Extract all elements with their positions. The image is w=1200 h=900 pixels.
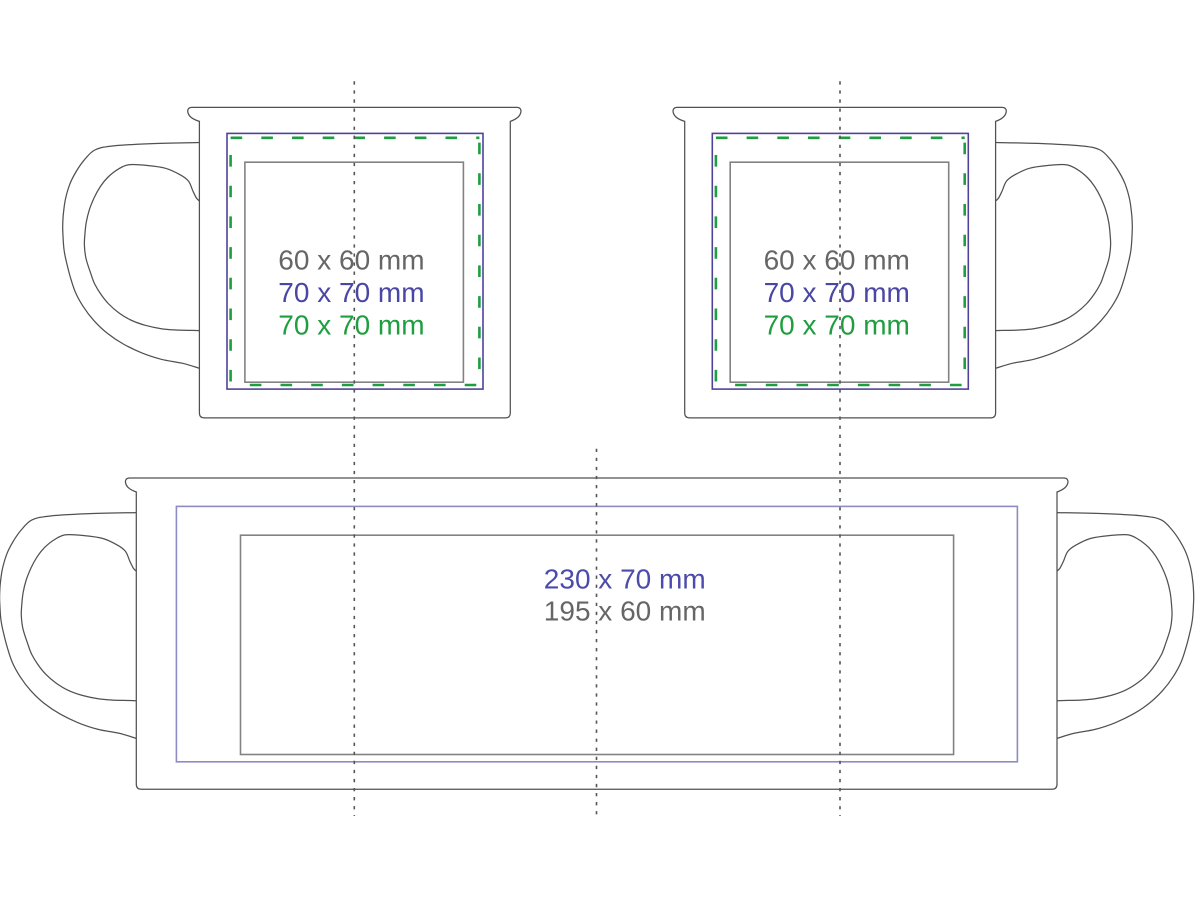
svg-text:70 x 70 mm: 70 x 70 mm <box>278 309 424 340</box>
svg-text:70 x 70 mm: 70 x 70 mm <box>278 277 424 308</box>
svg-text:195 x 60 mm: 195 x 60 mm <box>544 596 706 627</box>
svg-text:60 x 60 mm: 60 x 60 mm <box>278 244 424 275</box>
svg-text:230 x 70 mm: 230 x 70 mm <box>544 563 706 594</box>
svg-text:60 x 60 mm: 60 x 60 mm <box>764 244 910 275</box>
svg-text:70 x 70 mm: 70 x 70 mm <box>764 277 910 308</box>
svg-text:70 x 70 mm: 70 x 70 mm <box>764 309 910 340</box>
